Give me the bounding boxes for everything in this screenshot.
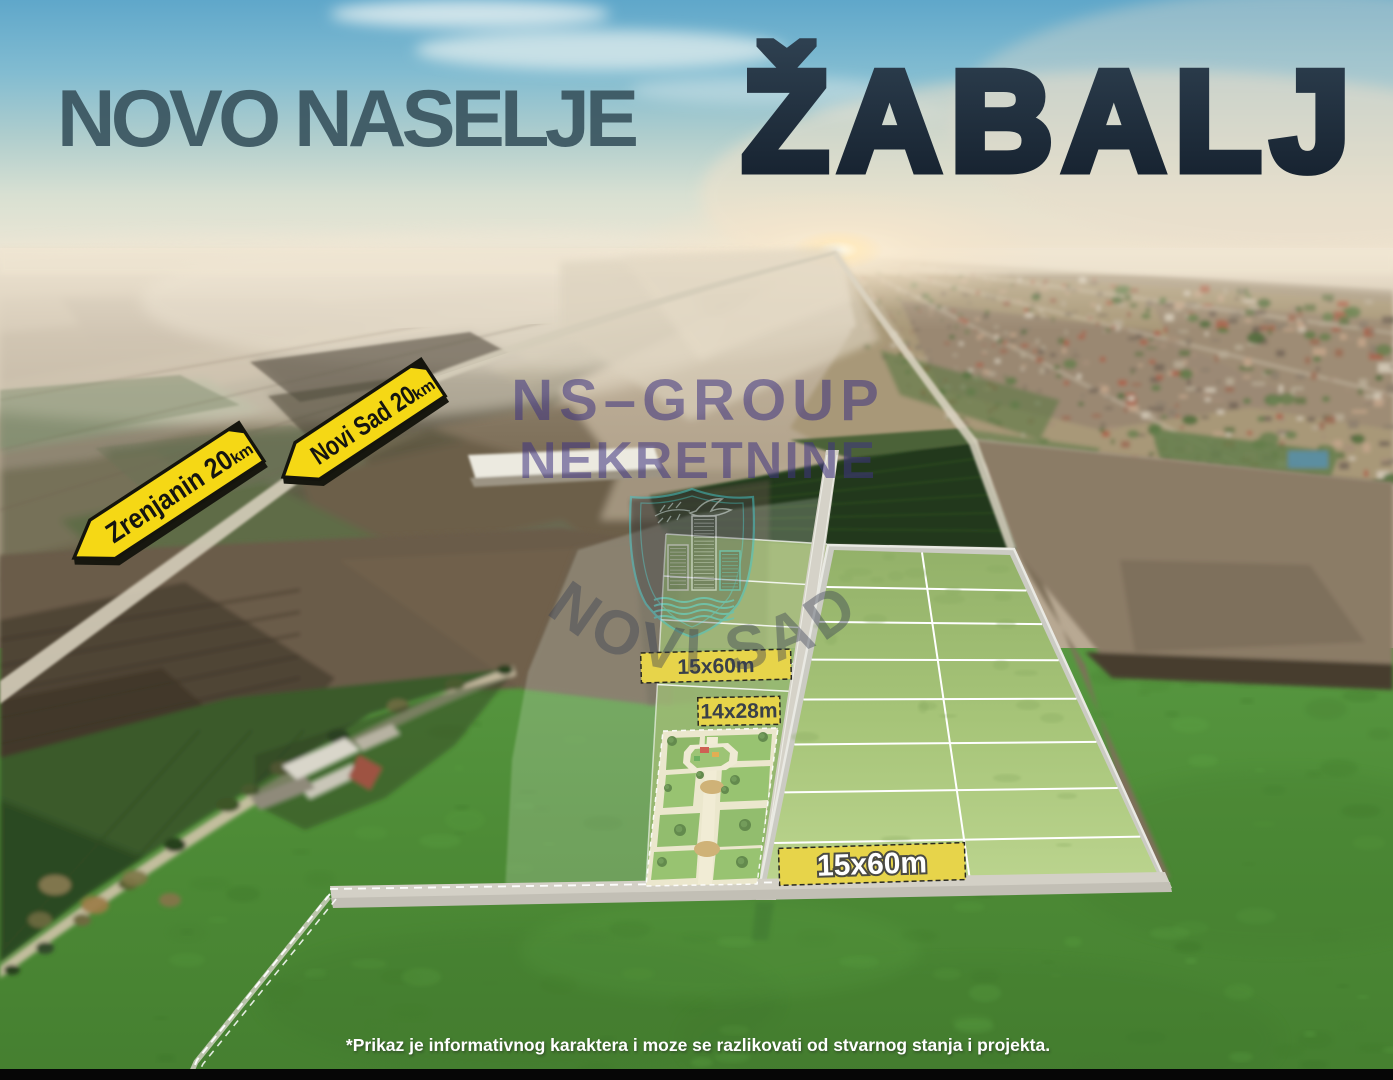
svg-text:NEKRETNINE: NEKRETNINE [519,432,877,490]
svg-text:15x60m: 15x60m [816,846,927,882]
svg-text:14x28m: 14x28m [700,699,777,723]
svg-text:*Prikaz je informativnog karak: *Prikaz je informativnog karaktera i moz… [346,1035,1050,1055]
svg-text:NOVO NASELJE: NOVO NASELJE [57,74,642,164]
svg-text:NS–GROUP: NS–GROUP [511,368,885,433]
